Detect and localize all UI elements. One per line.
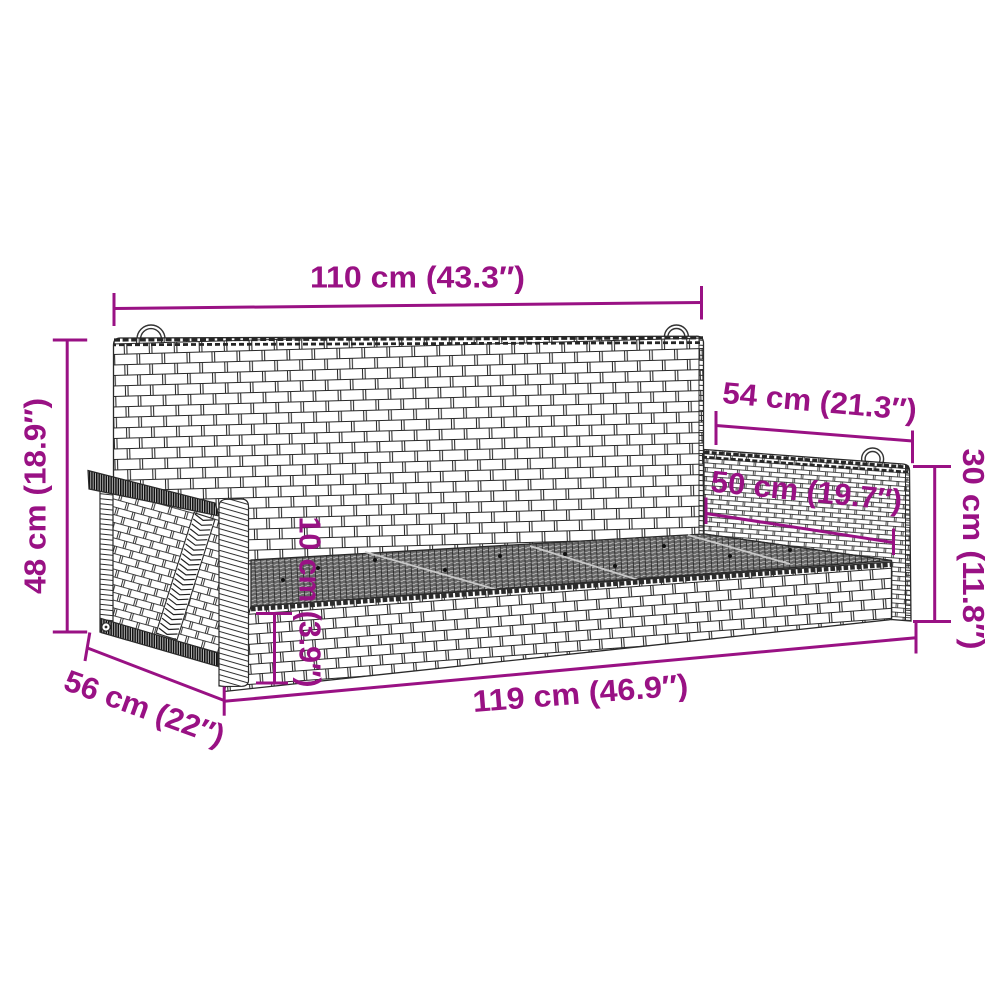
svg-text:48 cm (18.9″): 48 cm (18.9″) <box>19 398 53 594</box>
svg-text:110 cm (43.3″): 110 cm (43.3″) <box>310 260 525 294</box>
svg-text:10 cm (3.9″): 10 cm (3.9″) <box>293 517 327 688</box>
svg-text:30 cm (11.8″): 30 cm (11.8″) <box>956 449 990 650</box>
